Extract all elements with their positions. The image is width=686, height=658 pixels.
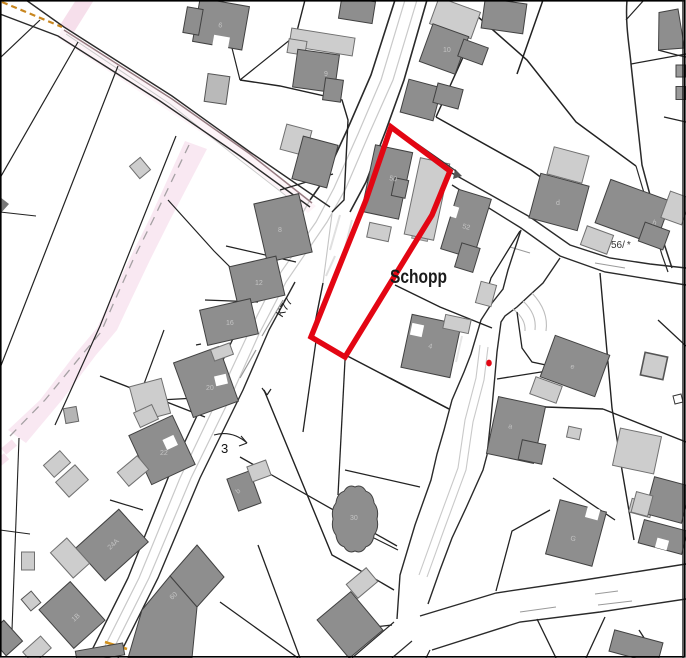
svg-text:Schopp: Schopp xyxy=(390,267,447,288)
svg-text:20: 20 xyxy=(206,385,214,392)
svg-text:56/ *: 56/ * xyxy=(611,240,631,251)
svg-text:16: 16 xyxy=(226,320,234,327)
svg-text:d: d xyxy=(556,200,560,207)
svg-text:22: 22 xyxy=(160,450,168,457)
svg-text:8: 8 xyxy=(278,227,282,234)
svg-text:30: 30 xyxy=(350,515,358,522)
svg-text:10: 10 xyxy=(443,47,451,54)
svg-text:3: 3 xyxy=(221,441,228,456)
svg-text:12: 12 xyxy=(255,280,263,287)
svg-text:9: 9 xyxy=(324,71,328,78)
